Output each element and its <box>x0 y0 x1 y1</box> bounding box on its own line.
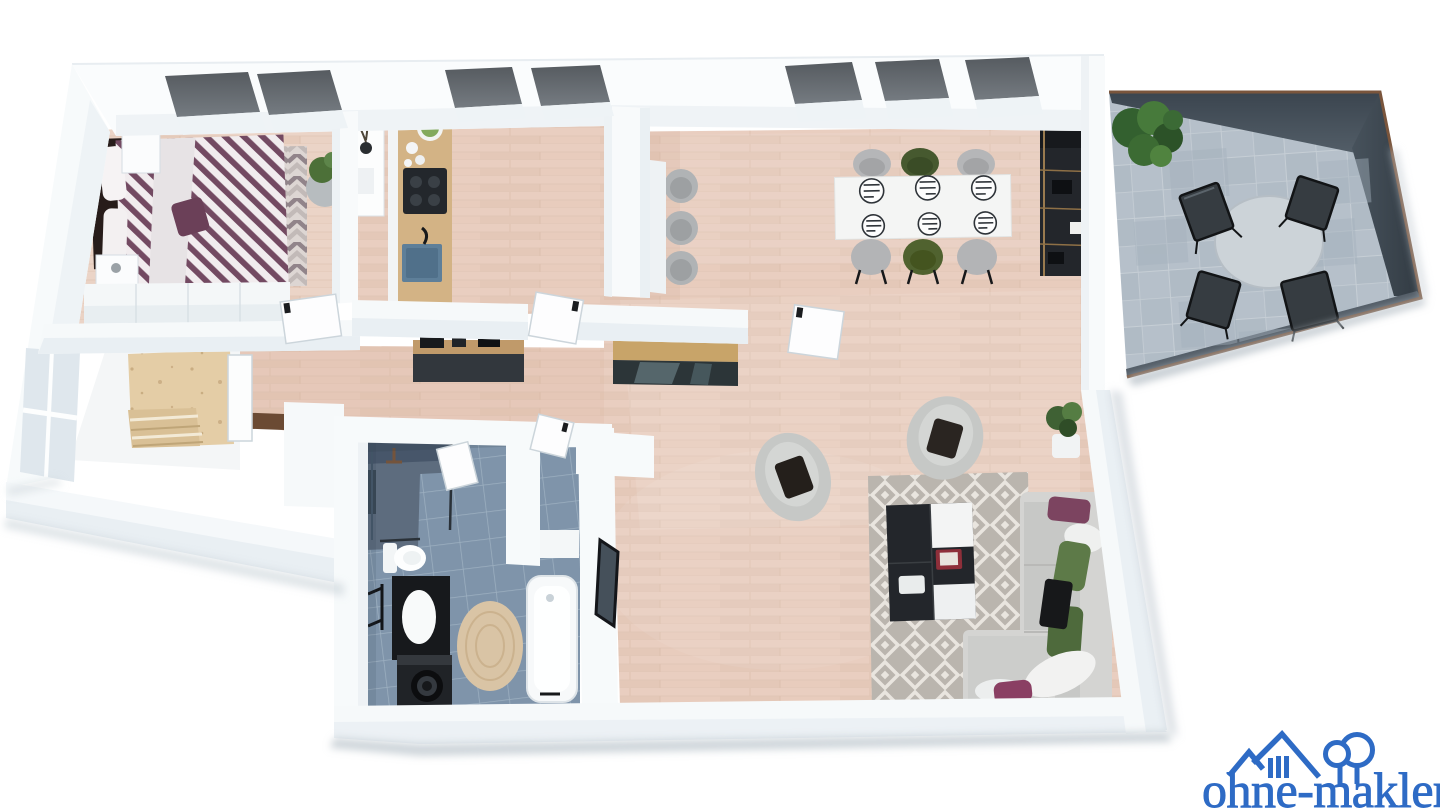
svg-text:ohne-makler: ohne-makler <box>1202 762 1440 810</box>
